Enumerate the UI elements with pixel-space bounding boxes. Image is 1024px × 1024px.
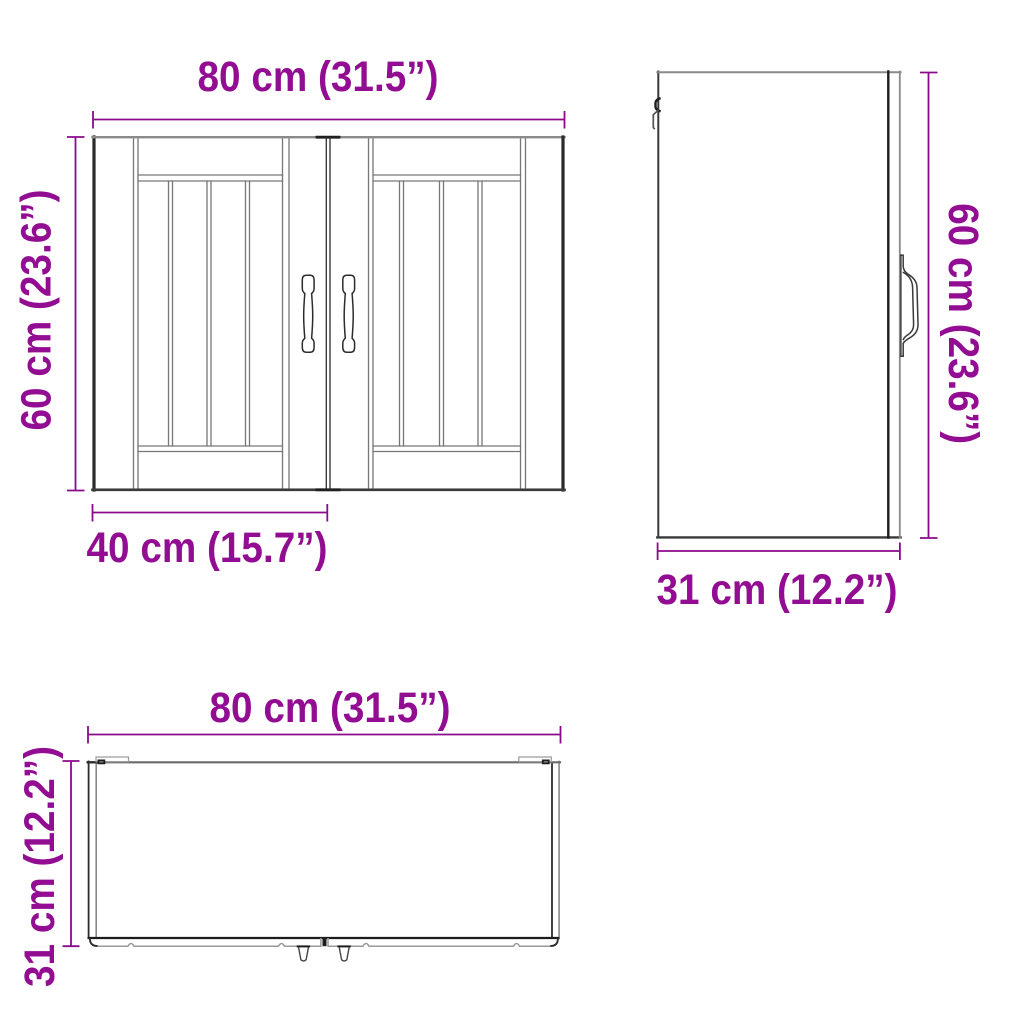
svg-text:80 cm (31.5”): 80 cm (31.5”) xyxy=(198,54,439,101)
svg-text:60 cm (23.6”): 60 cm (23.6”) xyxy=(13,190,60,431)
svg-text:80 cm (31.5”): 80 cm (31.5”) xyxy=(210,685,451,732)
svg-text:40 cm (15.7”): 40 cm (15.7”) xyxy=(87,525,328,572)
svg-text:31 cm (12.2”): 31 cm (12.2”) xyxy=(657,567,898,614)
svg-text:31 cm (12.2”): 31 cm (12.2”) xyxy=(17,746,64,987)
svg-text:60 cm (23.6”): 60 cm (23.6”) xyxy=(939,203,986,444)
